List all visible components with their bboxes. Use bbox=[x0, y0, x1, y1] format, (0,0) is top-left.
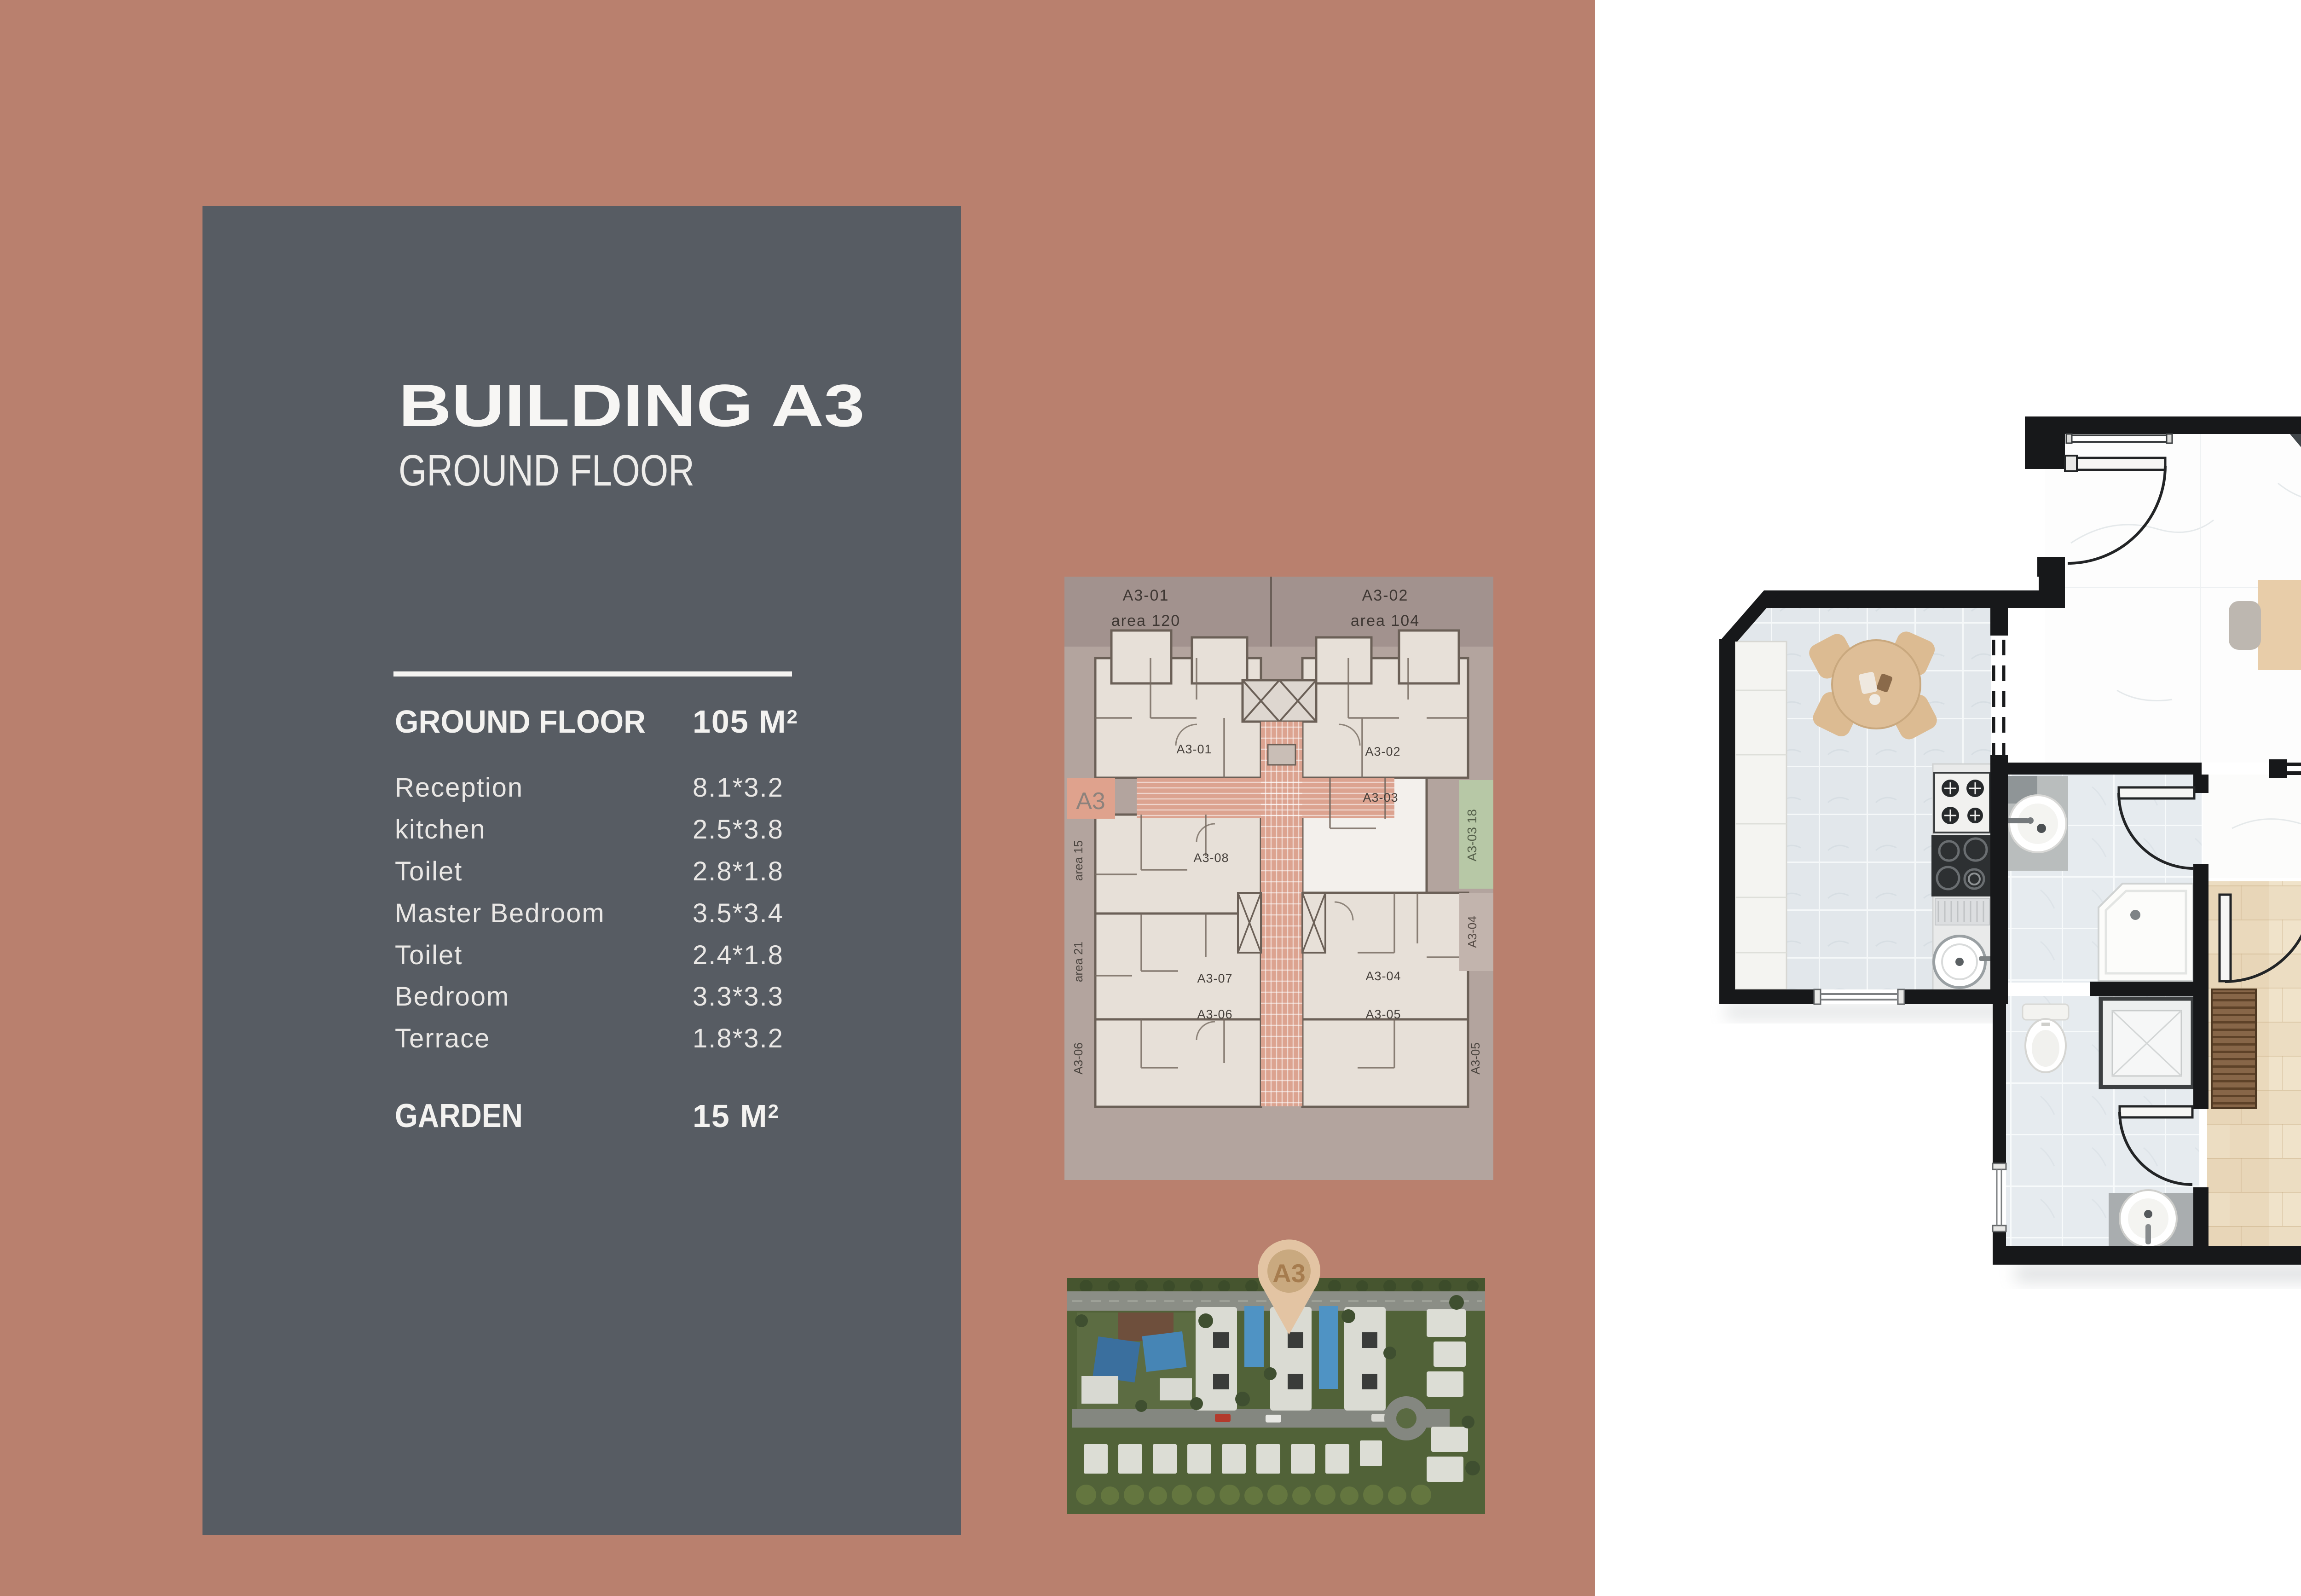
svg-text:kitchen: kitchen bbox=[395, 815, 486, 844]
svg-text:A3-03 18: A3-03 18 bbox=[1465, 809, 1479, 862]
svg-text:Master Bedroom: Master Bedroom bbox=[395, 898, 605, 928]
svg-text:A3-05: A3-05 bbox=[1468, 1042, 1482, 1074]
svg-text:2.5*3.8: 2.5*3.8 bbox=[693, 815, 784, 844]
svg-text:A3-06: A3-06 bbox=[1071, 1042, 1085, 1074]
svg-text:GROUND FLOOR: GROUND FLOOR bbox=[399, 446, 694, 495]
svg-text:105 M2: 105 M2 bbox=[693, 704, 798, 740]
svg-text:2.4*1.8: 2.4*1.8 bbox=[693, 940, 784, 970]
svg-text:A3-07: A3-07 bbox=[1197, 971, 1232, 985]
svg-text:A3: A3 bbox=[1076, 788, 1105, 815]
svg-text:A3-01: A3-01 bbox=[1123, 587, 1169, 604]
svg-text:2.8*1.8: 2.8*1.8 bbox=[693, 856, 784, 886]
svg-text:A3-08: A3-08 bbox=[1193, 851, 1229, 865]
svg-text:3.5*3.4: 3.5*3.4 bbox=[693, 898, 784, 928]
svg-text:area 104: area 104 bbox=[1351, 612, 1420, 630]
svg-text:A3-02: A3-02 bbox=[1365, 745, 1400, 758]
svg-text:GARDEN: GARDEN bbox=[395, 1098, 523, 1134]
svg-text:A3-05: A3-05 bbox=[1365, 1007, 1401, 1021]
svg-text:Toilet: Toilet bbox=[395, 856, 463, 886]
svg-text:A3-03: A3-03 bbox=[1363, 791, 1398, 804]
svg-text:A3-01: A3-01 bbox=[1176, 742, 1212, 756]
svg-text:A3: A3 bbox=[1272, 1259, 1306, 1288]
svg-text:Reception: Reception bbox=[395, 773, 523, 803]
svg-text:A3-06: A3-06 bbox=[1197, 1007, 1232, 1021]
svg-text:A3-04: A3-04 bbox=[1465, 916, 1479, 948]
svg-text:A3-04: A3-04 bbox=[1365, 969, 1401, 983]
svg-text:Terrace: Terrace bbox=[395, 1024, 490, 1053]
svg-text:3.3*3.3: 3.3*3.3 bbox=[693, 982, 784, 1012]
svg-text:A3-02: A3-02 bbox=[1362, 587, 1409, 604]
svg-text:Toilet: Toilet bbox=[395, 940, 463, 970]
svg-text:area 15: area 15 bbox=[1071, 840, 1085, 881]
svg-text:8.1*3.2: 8.1*3.2 bbox=[693, 773, 784, 803]
svg-text:area 120: area 120 bbox=[1111, 612, 1180, 630]
svg-text:BUILDING A3: BUILDING A3 bbox=[399, 372, 865, 439]
svg-text:GROUND FLOOR: GROUND FLOOR bbox=[395, 704, 646, 740]
svg-text:15 M2: 15 M2 bbox=[693, 1098, 780, 1134]
svg-text:area 21: area 21 bbox=[1071, 942, 1085, 982]
svg-text:1.8*3.2: 1.8*3.2 bbox=[693, 1024, 784, 1053]
svg-text:Bedroom: Bedroom bbox=[395, 982, 509, 1012]
